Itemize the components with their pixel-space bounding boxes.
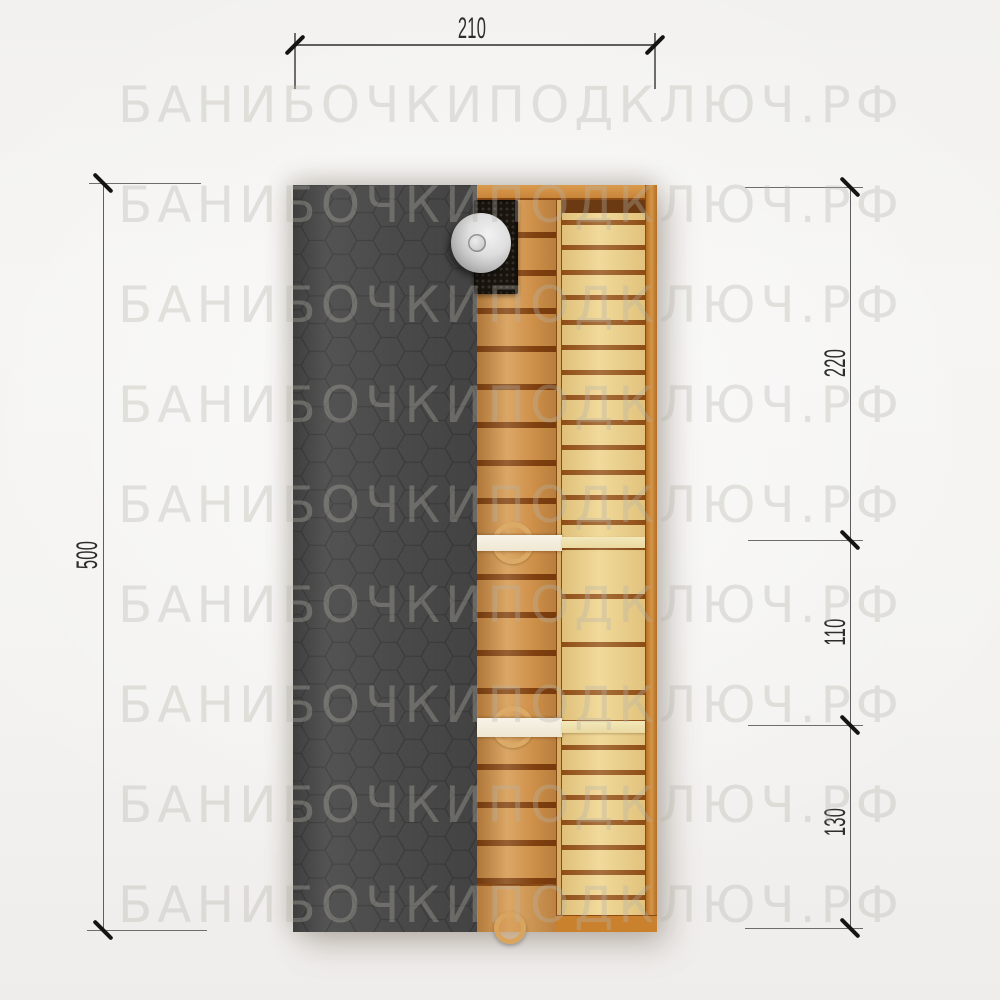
extension-line xyxy=(748,540,863,542)
drawing-canvas: 210 500 220 110 130 БАНИБОЧКИПОДКЛЮЧ.РФ … xyxy=(0,0,1000,1000)
extension-line xyxy=(745,187,863,189)
dim-label-vestibule: 130 xyxy=(819,808,853,836)
dimension-layer: 210 500 220 110 130 xyxy=(0,0,1000,1000)
dim-label-width: 210 xyxy=(458,12,486,46)
extension-line xyxy=(745,928,863,930)
dim-label-steam-room: 220 xyxy=(819,349,853,377)
extension-line xyxy=(748,725,863,727)
dim-label-wash-room: 110 xyxy=(819,618,853,645)
dim-label-length: 500 xyxy=(71,541,105,569)
